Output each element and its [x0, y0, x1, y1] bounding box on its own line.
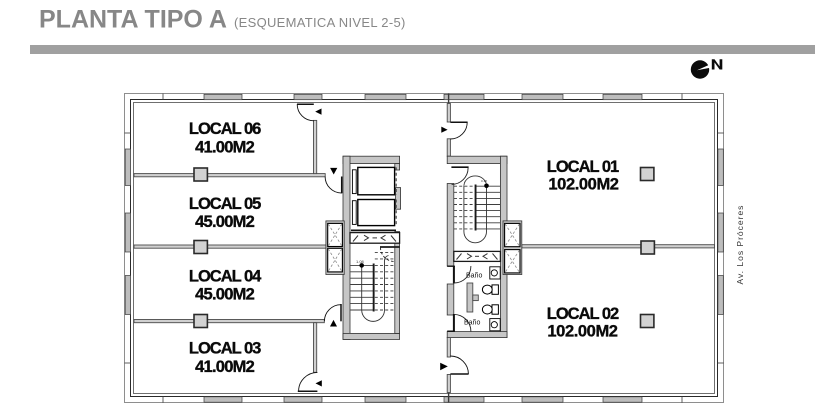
- svg-text:1.08: 1.08: [356, 259, 365, 264]
- svg-text:Baño: Baño: [466, 273, 482, 280]
- svg-text:102.00M2: 102.00M2: [548, 175, 618, 193]
- svg-text:102.00M2: 102.00M2: [547, 323, 617, 341]
- svg-text:45.00M2: 45.00M2: [195, 213, 255, 231]
- svg-text:LOCAL 06: LOCAL 06: [189, 120, 261, 138]
- svg-text:41.00M2: 41.00M2: [195, 358, 255, 376]
- svg-text:LOCAL 05: LOCAL 05: [189, 195, 261, 213]
- svg-text:45.00M2: 45.00M2: [195, 286, 255, 304]
- svg-text:Av. Los Próceres: Av. Los Próceres: [735, 205, 745, 285]
- svg-text:0.18: 0.18: [481, 179, 487, 183]
- svg-text:LOCAL 01: LOCAL 01: [547, 158, 619, 176]
- svg-text:LOCAL 03: LOCAL 03: [189, 340, 261, 358]
- svg-text:41.00M2: 41.00M2: [195, 139, 255, 157]
- svg-text:LOCAL 02: LOCAL 02: [547, 305, 619, 323]
- svg-text:LOCAL 04: LOCAL 04: [189, 268, 262, 286]
- svg-text:(ESQUEMATICA NIVEL 2-5): (ESQUEMATICA NIVEL 2-5): [234, 15, 406, 30]
- svg-text:PLANTA TIPO A: PLANTA TIPO A: [39, 6, 227, 34]
- svg-text:Baño: Baño: [464, 320, 480, 327]
